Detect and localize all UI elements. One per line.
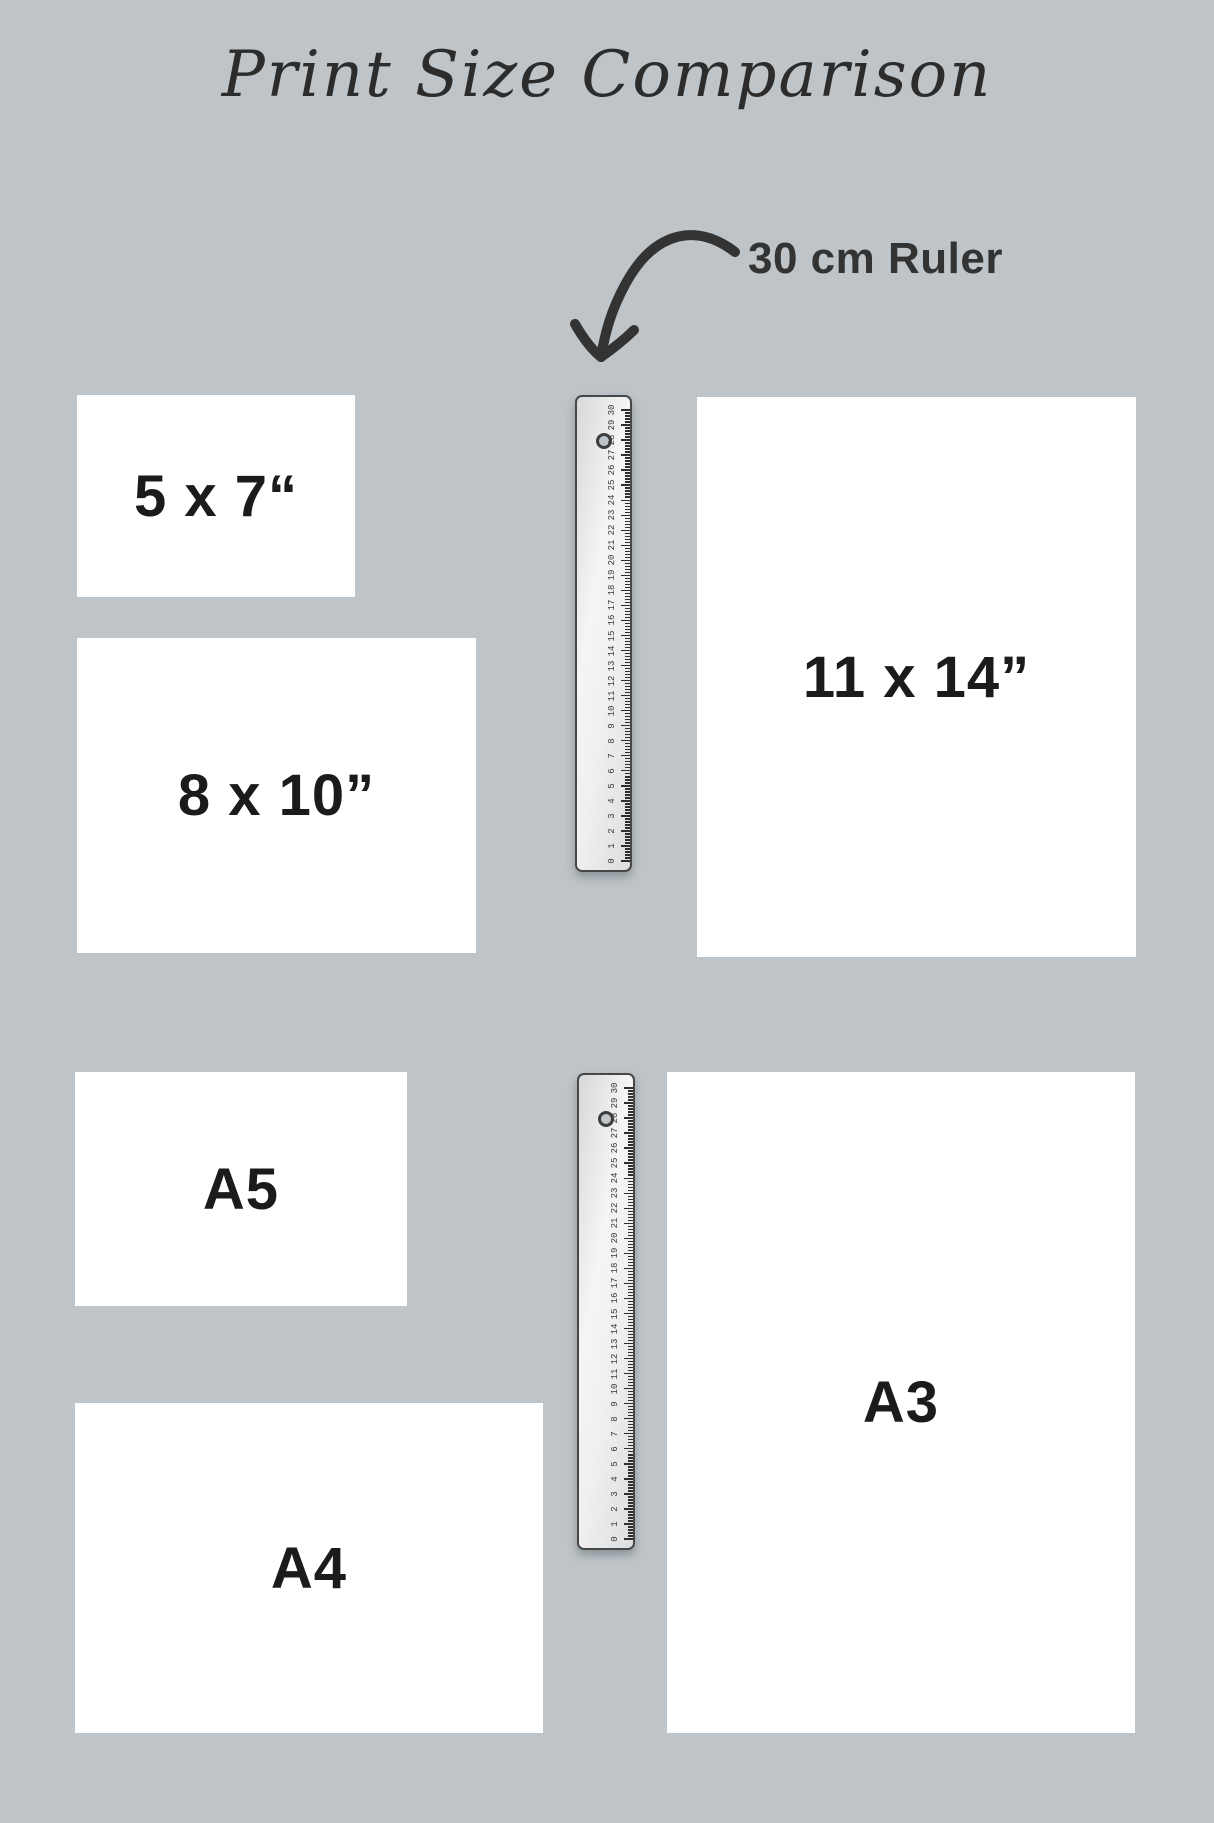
ruler-number: 9 <box>610 1396 620 1412</box>
ruler-tick-minor <box>628 1532 633 1533</box>
ruler-tick-minor <box>625 493 630 494</box>
ruler-tick-minor <box>628 1376 633 1377</box>
ruler-tick-minor <box>628 1319 633 1320</box>
ruler-tick-minor <box>628 1430 633 1431</box>
ruler-tick-minor <box>625 421 630 422</box>
ruler-number: 14 <box>610 1321 620 1337</box>
ruler-number: 22 <box>610 1200 620 1216</box>
ruler-tick-minor <box>625 713 630 714</box>
ruler-tick-major <box>624 1523 633 1524</box>
ruler-tick-minor <box>628 1352 633 1353</box>
ruler-tick-minor <box>628 1496 633 1497</box>
ruler-tick-minor <box>628 1292 633 1293</box>
ruler-tick-major <box>624 1238 633 1239</box>
ruler-tick-major <box>624 1178 633 1179</box>
ruler-tick-minor <box>628 1379 633 1380</box>
ruler-number: 0 <box>610 1531 620 1547</box>
ruler-tick-minor <box>628 1184 633 1185</box>
ruler-tick-minor <box>625 572 630 573</box>
ruler-tick-minor <box>625 521 630 522</box>
ruler-tick-minor <box>628 1114 633 1115</box>
ruler-number: 20 <box>610 1230 620 1246</box>
ruler-tick-minor <box>625 448 630 449</box>
ruler-tick-major <box>621 424 630 425</box>
ruler-tick-minor <box>625 653 630 654</box>
ruler-tick-minor <box>628 1156 633 1157</box>
ruler-number: 18 <box>610 1260 620 1276</box>
ruler-number: 23 <box>607 507 617 523</box>
ruler-tick-minor <box>625 809 630 810</box>
ruler-tick-minor <box>628 1382 633 1383</box>
ruler-number: 11 <box>610 1366 620 1382</box>
ruler-tick-major <box>624 1343 633 1344</box>
ruler-tick-major <box>621 530 630 531</box>
ruler-tick-minor <box>628 1304 633 1305</box>
print-size-rect-a5: A5 <box>75 1072 407 1306</box>
ruler-tick-major <box>621 755 630 756</box>
ruler-tick-minor <box>628 1316 633 1317</box>
ruler-tick-minor <box>625 596 630 597</box>
ruler-tick-major <box>624 1478 633 1479</box>
ruler-tick-minor <box>625 638 630 639</box>
ruler-tick-minor <box>628 1505 633 1506</box>
ruler-tick-minor <box>625 782 630 783</box>
ruler-tick-minor <box>625 767 630 768</box>
ruler-tick-major <box>621 740 630 741</box>
ruler-tick-minor <box>625 857 630 858</box>
ruler-tick-minor <box>625 569 630 570</box>
ruler-tick-minor <box>628 1096 633 1097</box>
ruler-tick-minor <box>628 1211 633 1212</box>
ruler-tick-minor <box>628 1289 633 1290</box>
ruler-number: 29 <box>610 1095 620 1111</box>
ruler-tick-minor <box>625 824 630 825</box>
ruler-tick-minor <box>625 818 630 819</box>
ruler-tick-minor <box>628 1232 633 1233</box>
ruler-tick-major <box>621 650 630 651</box>
ruler-tick-minor <box>628 1361 633 1362</box>
ruler-number: 12 <box>607 673 617 689</box>
ruler-tick-minor <box>628 1301 633 1302</box>
ruler-tick-major <box>624 1463 633 1464</box>
ruler-tick-minor <box>625 791 630 792</box>
ruler-number: 16 <box>607 612 617 628</box>
ruler-tick-minor <box>628 1337 633 1338</box>
ruler-tick-minor <box>625 539 630 540</box>
ruler-number: 26 <box>607 462 617 478</box>
ruler-tick-minor <box>625 566 630 567</box>
ruler-tick-minor <box>625 551 630 552</box>
ruler-tick-minor <box>628 1520 633 1521</box>
ruler-tick-minor <box>628 1153 633 1154</box>
ruler-tick-minor <box>628 1174 633 1175</box>
ruler-tick-major <box>624 1117 633 1118</box>
ruler-tick-minor <box>625 674 630 675</box>
ruler-tick-minor <box>625 512 630 513</box>
ruler-tick-minor <box>628 1502 633 1503</box>
ruler-number: 7 <box>610 1426 620 1442</box>
ruler-tick-minor <box>625 752 630 753</box>
ruler-number: 13 <box>610 1336 620 1352</box>
ruler-number: 19 <box>607 567 617 583</box>
ruler-tick-minor <box>628 1454 633 1455</box>
print-size-rect-5x7: 5 x 7“ <box>77 395 355 597</box>
ruler-tick-minor <box>625 617 630 618</box>
ruler-tick-minor <box>625 701 630 702</box>
ruler-tick-minor <box>628 1334 633 1335</box>
ruler-tick-minor <box>628 1331 633 1332</box>
ruler-tick-major <box>621 770 630 771</box>
ruler-tick-minor <box>628 1490 633 1491</box>
ruler-tick-major <box>624 1358 633 1359</box>
ruler-number: 0 <box>607 853 617 869</box>
ruler-tick-major <box>624 1493 633 1494</box>
ruler-tick-minor <box>628 1247 633 1248</box>
ruler-tick-minor <box>625 686 630 687</box>
ruler-tick-minor <box>625 518 630 519</box>
curved-arrow-barb-left <box>575 324 601 357</box>
ruler-tick-major <box>621 830 630 831</box>
ruler-tick-minor <box>625 490 630 491</box>
ruler-tick-minor <box>625 457 630 458</box>
ruler-number: 25 <box>610 1155 620 1171</box>
ruler-tick-minor <box>625 611 630 612</box>
ruler-number: 4 <box>610 1471 620 1487</box>
ruler-tick-major <box>624 1508 633 1509</box>
ruler-number: 15 <box>607 628 617 644</box>
ruler-number: 3 <box>607 808 617 824</box>
ruler-number: 20 <box>607 552 617 568</box>
ruler-tick-minor <box>625 662 630 663</box>
ruler-tick-minor <box>628 1325 633 1326</box>
ruler-tick-minor <box>625 788 630 789</box>
ruler-tick-minor <box>625 487 630 488</box>
ruler-tick-minor <box>625 481 630 482</box>
ruler-number: 11 <box>607 688 617 704</box>
ruler-tick-major <box>621 785 630 786</box>
ruler-tick-major <box>624 1328 633 1329</box>
ruler-tick-minor <box>628 1481 633 1482</box>
ruler-tick-major <box>621 469 630 470</box>
ruler-tick-minor <box>628 1370 633 1371</box>
ruler-tick-minor <box>625 758 630 759</box>
ruler-tick-minor <box>628 1099 633 1100</box>
ruler-tick-minor <box>628 1129 633 1130</box>
ruler-tick-minor <box>625 773 630 774</box>
print-size-rect-8x10: 8 x 10” <box>77 638 476 953</box>
ruler-number: 8 <box>610 1411 620 1427</box>
ruler-tick-minor <box>628 1159 633 1160</box>
ruler-tick-minor <box>625 677 630 678</box>
ruler-number: 16 <box>610 1290 620 1306</box>
ruler-tick-minor <box>628 1141 633 1142</box>
ruler-tick-minor <box>628 1394 633 1395</box>
ruler-tick-minor <box>628 1484 633 1485</box>
ruler-number: 7 <box>607 748 617 764</box>
ruler-tick-minor <box>628 1349 633 1350</box>
ruler-number: 24 <box>610 1170 620 1186</box>
ruler-tick-minor <box>625 436 630 437</box>
ruler-tick-major <box>624 1208 633 1209</box>
ruler-tick-minor <box>625 509 630 510</box>
ruler-tick-minor <box>625 839 630 840</box>
ruler-tick-minor <box>625 554 630 555</box>
ruler-tick-major <box>621 454 630 455</box>
ruler-tick-major <box>621 680 630 681</box>
ruler-tick-major <box>624 1373 633 1374</box>
ruler-tick-major <box>624 1268 633 1269</box>
ruler-tick-minor <box>628 1475 633 1476</box>
ruler-number: 21 <box>610 1215 620 1231</box>
ruler-tick-minor <box>625 737 630 738</box>
print-size-label-a3: A3 <box>863 1369 939 1436</box>
ruler-tick-minor <box>628 1111 633 1112</box>
ruler-number: 6 <box>607 763 617 779</box>
ruler-tick-minor <box>625 668 630 669</box>
ruler-tick-major <box>621 860 630 861</box>
ruler-number: 10 <box>610 1381 620 1397</box>
ruler-tick-minor <box>625 626 630 627</box>
ruler-tick-minor <box>628 1250 633 1251</box>
ruler-number: 19 <box>610 1245 620 1261</box>
ruler-tick-minor <box>625 412 630 413</box>
ruler-tick-minor <box>628 1364 633 1365</box>
ruler-tick-minor <box>628 1108 633 1109</box>
ruler-tick-minor <box>625 692 630 693</box>
ruler-tick-minor <box>625 557 630 558</box>
ruler-number: 14 <box>607 643 617 659</box>
ruler-tick-minor <box>628 1442 633 1443</box>
ruler-tick-minor <box>628 1199 633 1200</box>
ruler-tick-major <box>624 1433 633 1434</box>
ruler-number: 23 <box>610 1185 620 1201</box>
ruler-tick-minor <box>628 1421 633 1422</box>
ruler-tick-minor <box>625 629 630 630</box>
ruler-number: 6 <box>610 1441 620 1457</box>
ruler-tick-minor <box>628 1424 633 1425</box>
ruler-tick-minor <box>628 1367 633 1368</box>
ruler-tick-minor <box>628 1090 633 1091</box>
ruler-tick-minor <box>628 1310 633 1311</box>
ruler-number: 28 <box>607 432 617 448</box>
ruler-number: 17 <box>607 597 617 613</box>
ruler-tick-minor <box>625 833 630 834</box>
ruler-tick-minor <box>628 1244 633 1245</box>
ruler-tick-minor <box>625 503 630 504</box>
ruler-tick-minor <box>625 731 630 732</box>
ruler-tick-minor <box>625 527 630 528</box>
curved-arrow-barb-right <box>601 330 634 357</box>
ruler-tick-minor <box>625 427 630 428</box>
ruler-number: 2 <box>607 823 617 839</box>
ruler-tick-minor <box>625 683 630 684</box>
ruler-tick-minor <box>628 1214 633 1215</box>
ruler-tick-minor <box>628 1241 633 1242</box>
ruler-tick-major <box>624 1448 633 1449</box>
ruler-number: 9 <box>607 718 617 734</box>
ruler-tick-major <box>621 500 630 501</box>
ruler-tick-minor <box>625 689 630 690</box>
ruler-tick-minor <box>628 1499 633 1500</box>
ruler-tick-minor <box>625 415 630 416</box>
ruler-tick-minor <box>628 1514 633 1515</box>
ruler-number: 30 <box>607 402 617 418</box>
ruler-tick-minor <box>625 641 630 642</box>
ruler-tick-minor <box>625 548 630 549</box>
ruler-tick-minor <box>625 821 630 822</box>
ruler-tick-minor <box>628 1535 633 1536</box>
ruler-tick-minor <box>628 1205 633 1206</box>
ruler-tick-minor <box>625 599 630 600</box>
ruler-tick-major <box>621 815 630 816</box>
ruler-tick-minor <box>628 1355 633 1356</box>
ruler-tick-minor <box>625 836 630 837</box>
print-size-label-11x14: 11 x 14” <box>803 644 1030 711</box>
ruler-tick-minor <box>628 1256 633 1257</box>
ruler-number: 5 <box>607 778 617 794</box>
ruler-tick-minor <box>625 430 630 431</box>
ruler-tick-minor <box>628 1165 633 1166</box>
ruler-tick-minor <box>628 1511 633 1512</box>
ruler-tick-minor <box>625 851 630 852</box>
ruler-tick-minor <box>625 614 630 615</box>
ruler-tick-minor <box>628 1469 633 1470</box>
ruler-tick-minor <box>628 1415 633 1416</box>
ruler-tick-minor <box>628 1457 633 1458</box>
ruler-tick-minor <box>625 722 630 723</box>
ruler-tick-major <box>624 1388 633 1389</box>
ruler-tick-minor <box>628 1105 633 1106</box>
ruler-tick-minor <box>628 1187 633 1188</box>
ruler-number: 4 <box>607 793 617 809</box>
ruler-tick-major <box>624 1298 633 1299</box>
ruler-tick-minor <box>628 1138 633 1139</box>
ruler-tick-major <box>621 409 630 410</box>
ruler-tick-minor <box>625 533 630 534</box>
ruler-tick-minor <box>628 1436 633 1437</box>
ruler-tick-major <box>624 1418 633 1419</box>
ruler-tick-minor <box>628 1181 633 1182</box>
ruler-tick-minor <box>628 1451 633 1452</box>
ruler-tick-minor <box>625 746 630 747</box>
ruler-tick-minor <box>625 803 630 804</box>
ruler-tick-minor <box>628 1259 633 1260</box>
ruler-tick-minor <box>625 451 630 452</box>
ruler-tick-minor <box>628 1487 633 1488</box>
ruler-tick-minor <box>628 1196 633 1197</box>
ruler-tick-major <box>624 1147 633 1148</box>
ruler-number: 30 <box>610 1080 620 1096</box>
ruler-tick-minor <box>628 1445 633 1446</box>
ruler-tick-minor <box>625 644 630 645</box>
ruler-tick-minor <box>628 1322 633 1323</box>
ruler-number: 2 <box>610 1501 620 1517</box>
ruler-tick-major <box>624 1193 633 1194</box>
ruler-tick-minor <box>625 506 630 507</box>
ruler-tick-minor <box>625 671 630 672</box>
ruler-tick-major <box>624 1087 633 1088</box>
print-size-label-a5: A5 <box>203 1156 279 1223</box>
ruler-tick-minor <box>628 1126 633 1127</box>
ruler-tick-minor <box>628 1226 633 1227</box>
ruler-tick-minor <box>625 707 630 708</box>
ruler-tick-minor <box>625 806 630 807</box>
ruler-tick-minor <box>625 632 630 633</box>
ruler-tick-minor <box>628 1135 633 1136</box>
ruler-tick-minor <box>628 1235 633 1236</box>
ruler-tick-minor <box>628 1144 633 1145</box>
ruler-tick-major <box>621 560 630 561</box>
ruler-tick-minor <box>628 1271 633 1272</box>
ruler-tick-minor <box>628 1123 633 1124</box>
ruler-tick-minor <box>625 593 630 594</box>
ruler-tick-minor <box>625 761 630 762</box>
ruler-tick-major <box>624 1403 633 1404</box>
ruler-tick-minor <box>625 463 630 464</box>
ruler-tick-minor <box>625 743 630 744</box>
print-size-label-8x10: 8 x 10” <box>178 762 375 829</box>
ruler-tick-minor <box>628 1280 633 1281</box>
ruler-tick-major <box>621 605 630 606</box>
ruler-tick-major <box>624 1223 633 1224</box>
ruler-number: 25 <box>607 477 617 493</box>
ruler-tick-minor <box>628 1472 633 1473</box>
ruler-number: 24 <box>607 492 617 508</box>
page-title: Print Size Comparison <box>0 38 1214 112</box>
ruler-tick-minor <box>628 1202 633 1203</box>
ruler-number: 12 <box>610 1351 620 1367</box>
ruler-number: 8 <box>607 733 617 749</box>
ruler-tick-major <box>621 845 630 846</box>
print-size-rect-a3: A3 <box>667 1072 1135 1733</box>
ruler-tick-minor <box>628 1409 633 1410</box>
ruler-tick-minor <box>628 1427 633 1428</box>
ruler-tick-minor <box>625 764 630 765</box>
ruler-tick-minor <box>628 1346 633 1347</box>
print-size-comparison-infographic: Print Size Comparison 30 cm Ruler 5 x 7“… <box>0 0 1214 1823</box>
ruler-tick-minor <box>625 466 630 467</box>
ruler-tick-major <box>621 484 630 485</box>
ruler-tick-minor <box>625 460 630 461</box>
ruler-tick-minor <box>625 848 630 849</box>
ruler-tick-minor <box>628 1397 633 1398</box>
ruler-tick-minor <box>628 1150 633 1151</box>
ruler-top: 0123456789101112131415161718192021222324… <box>575 395 632 872</box>
ruler-tick-minor <box>628 1460 633 1461</box>
ruler-tick-minor <box>628 1168 633 1169</box>
ruler-tick-major <box>624 1102 633 1103</box>
print-size-rect-a4: A4 <box>75 1403 543 1733</box>
ruler-tick-minor <box>628 1262 633 1263</box>
ruler-tick-major <box>621 590 630 591</box>
ruler-tick-minor <box>625 602 630 603</box>
ruler-number: 1 <box>607 838 617 854</box>
ruler-tick-minor <box>625 587 630 588</box>
ruler-number: 27 <box>610 1125 620 1141</box>
ruler-tick-minor <box>625 478 630 479</box>
ruler-tick-major <box>624 1538 633 1539</box>
ruler-tick-minor <box>628 1286 633 1287</box>
ruler-tick-minor <box>625 445 630 446</box>
ruler-tick-minor <box>625 854 630 855</box>
ruler-tick-minor <box>625 524 630 525</box>
ruler-number: 27 <box>607 447 617 463</box>
print-size-rect-11x14: 11 x 14” <box>697 397 1136 957</box>
ruler-tick-minor <box>628 1190 633 1191</box>
ruler-tick-minor <box>625 698 630 699</box>
ruler-tick-minor <box>625 716 630 717</box>
ruler-tick-minor <box>628 1217 633 1218</box>
